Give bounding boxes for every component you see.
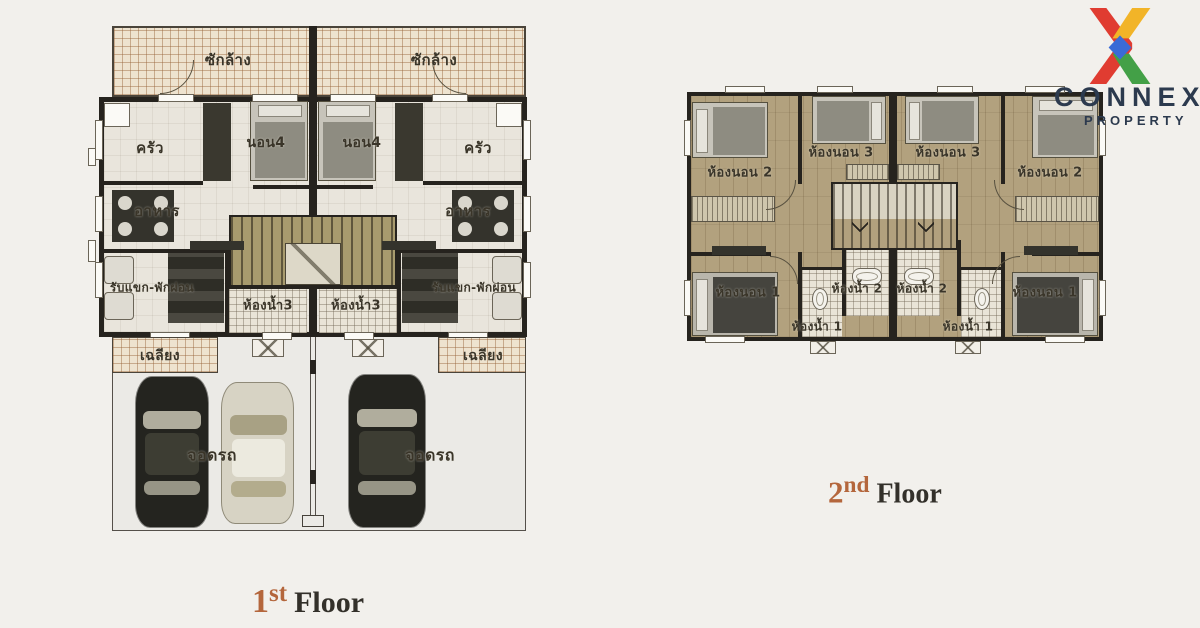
window [705,336,745,343]
stair-arrow [918,222,934,232]
second-floor-caption: 2ndFloor [828,472,942,510]
room-label-bedroom2-right: ห้องนอน 2 [1017,162,1082,183]
room-label-bathroom1-right: ห้องน้ำ 1 [943,318,994,337]
room-label-carport-left: จอดรถ [187,444,237,469]
wardrobe [691,196,775,222]
room-label-bedroom3-right: ห้องนอน 3 [915,142,980,163]
window [252,94,298,102]
window [330,94,376,102]
room-label-carport-right: จอดรถ [405,444,455,469]
entry-step [955,341,981,354]
room-label-bathroom1-left: ห้องน้ำ 1 [792,318,843,337]
second-floor-word: Floor [876,478,941,509]
first-floor-caption: 1stFloor [252,580,364,621]
divider-post [310,360,316,374]
room-label-bathroom3-right: ห้องน้ำ3 [331,295,381,316]
room-label-dining-right: อาหาร [445,199,491,223]
entry-step [252,339,284,357]
room-label-dining-left: อาหาร [134,199,180,223]
wall [103,181,203,185]
window [95,262,103,298]
wardrobe [395,103,423,181]
wardrobe [846,164,889,180]
entry-step [810,341,836,354]
logo-brand-text: CONNEX [1054,82,1200,113]
window [95,196,103,232]
connex-logo: CONNEX PROPERTY [1040,0,1200,140]
wall [397,249,401,337]
sideboard [190,241,244,250]
wall [317,185,373,189]
door-gap [432,94,468,102]
wardrobe [897,164,940,180]
wall [423,181,523,185]
room-label-porch-right: เฉลียง [463,345,503,367]
room-label-bathroom2-left: ห้องน้ำ 2 [832,280,883,299]
window [817,86,853,93]
bed [812,96,886,144]
sideboard [382,241,436,250]
room-label-living-right: รับแขก-พักผ่อน [432,279,516,298]
wardrobe [1015,196,1099,222]
entry-step [352,339,384,357]
room-label-bathroom2-right: ห้องน้ำ 2 [897,280,948,299]
tv-shelf [1024,246,1078,255]
window [523,120,531,160]
room-label-living-left: รับแขก-พักผ่อน [110,279,194,298]
room-label-kitchen-left: ครัว [136,136,164,160]
bed [905,96,979,144]
room-label-bedroom2-left: ห้องนอน 2 [707,162,772,183]
first-floor-ordinal: 1 [252,583,269,620]
first-floor-word: Floor [294,586,364,619]
room-label-laundry-right: ซักล้าง [411,48,457,72]
window [523,196,531,232]
window [725,86,765,93]
window [684,280,691,316]
room-label-bedroom4-left: นอน4 [247,132,286,154]
wall [1001,96,1005,184]
first-floor-plan: ซักล้าง ซักล้าง [0,0,600,628]
room-label-bedroom1-left: ห้องนอน 1 [715,282,780,303]
wall [798,96,802,184]
room-label-kitchen-right: ครัว [464,136,492,160]
toilet [974,288,990,310]
ac-unit [88,240,96,262]
window [684,120,691,156]
kitchen-counter [496,103,522,127]
tv-shelf [712,246,766,255]
wall [253,185,309,189]
second-floor-suffix: nd [844,472,870,498]
stair-arrow [852,222,868,232]
toilet [812,288,828,310]
room-label-porch-left: เฉลียง [140,345,180,367]
window [937,86,973,93]
bed [692,102,768,158]
second-floor-ordinal: 2 [828,474,844,509]
door-gap [158,94,194,102]
window [523,262,531,298]
logo-tagline-text: PROPERTY [1084,113,1188,128]
room-label-bedroom3-left: ห้องนอน 3 [808,142,873,163]
wall [309,26,317,97]
ac-unit [88,148,96,166]
divider-post [310,470,316,484]
connex-x-icon [1078,8,1162,84]
staircase [831,182,958,250]
stair-landing [285,243,341,285]
window [1045,336,1085,343]
floor-plan-brochure: ซักล้าง ซักล้าง [0,0,1200,628]
wardrobe [203,103,231,181]
room-label-bedroom1-right: ห้องนอน 1 [1012,282,1077,303]
kitchen-counter [104,103,130,127]
first-floor-suffix: st [269,580,287,607]
window [1099,280,1106,316]
window [95,120,103,160]
room-label-bathroom3-left: ห้องน้ำ3 [243,295,293,316]
room-label-bedroom4-right: นอน4 [343,132,382,154]
gate-block [302,515,324,527]
room-label-laundry-left: ซักล้าง [205,48,251,72]
